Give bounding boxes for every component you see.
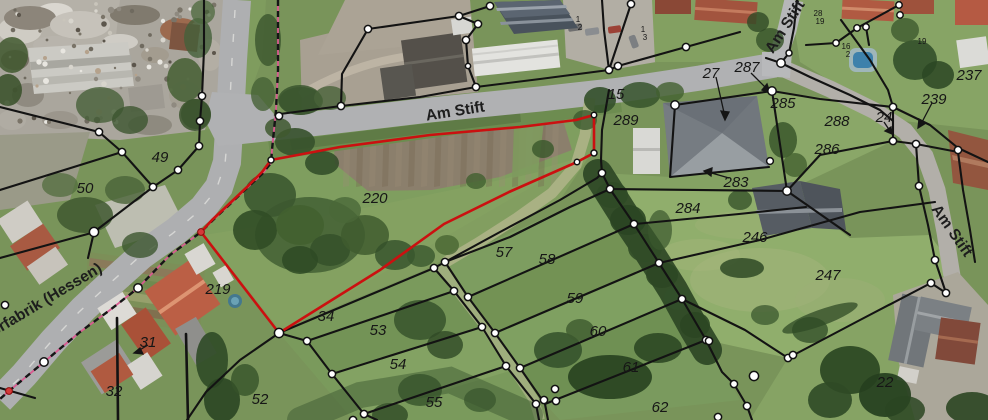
svg-text:285: 285 <box>769 95 796 112</box>
svg-text:59: 59 <box>567 290 584 307</box>
svg-text:15: 15 <box>608 86 625 103</box>
svg-text:34: 34 <box>318 308 335 325</box>
svg-text:2: 2 <box>846 50 851 59</box>
svg-text:19: 19 <box>918 37 927 46</box>
svg-text:24: 24 <box>875 109 893 126</box>
svg-text:62: 62 <box>652 399 669 416</box>
svg-text:54: 54 <box>390 356 407 373</box>
svg-text:49: 49 <box>152 149 169 166</box>
svg-text:237: 237 <box>955 67 982 84</box>
svg-text:284: 284 <box>674 200 700 217</box>
svg-text:50: 50 <box>77 180 94 197</box>
svg-text:247: 247 <box>814 267 841 284</box>
svg-text:289: 289 <box>612 112 639 129</box>
svg-text:287: 287 <box>733 59 760 76</box>
svg-text:219: 219 <box>204 281 231 298</box>
svg-text:61: 61 <box>623 359 640 376</box>
svg-text:246: 246 <box>741 229 768 246</box>
svg-text:22: 22 <box>876 374 894 391</box>
svg-text:3: 3 <box>643 33 648 42</box>
svg-text:32: 32 <box>106 383 123 400</box>
svg-text:57: 57 <box>496 244 513 261</box>
svg-text:239: 239 <box>920 91 947 108</box>
svg-text:55: 55 <box>426 394 443 411</box>
svg-text:27: 27 <box>702 65 720 82</box>
svg-text:60: 60 <box>590 323 607 340</box>
svg-text:52: 52 <box>252 391 269 408</box>
svg-text:283: 283 <box>722 174 749 191</box>
svg-text:58: 58 <box>539 251 556 268</box>
svg-text:19: 19 <box>816 17 825 26</box>
svg-text:2: 2 <box>578 23 583 32</box>
svg-text:53: 53 <box>370 322 387 339</box>
svg-text:31: 31 <box>140 334 157 351</box>
svg-text:288: 288 <box>823 113 850 130</box>
svg-text:220: 220 <box>361 190 388 207</box>
svg-text:286: 286 <box>813 141 840 158</box>
